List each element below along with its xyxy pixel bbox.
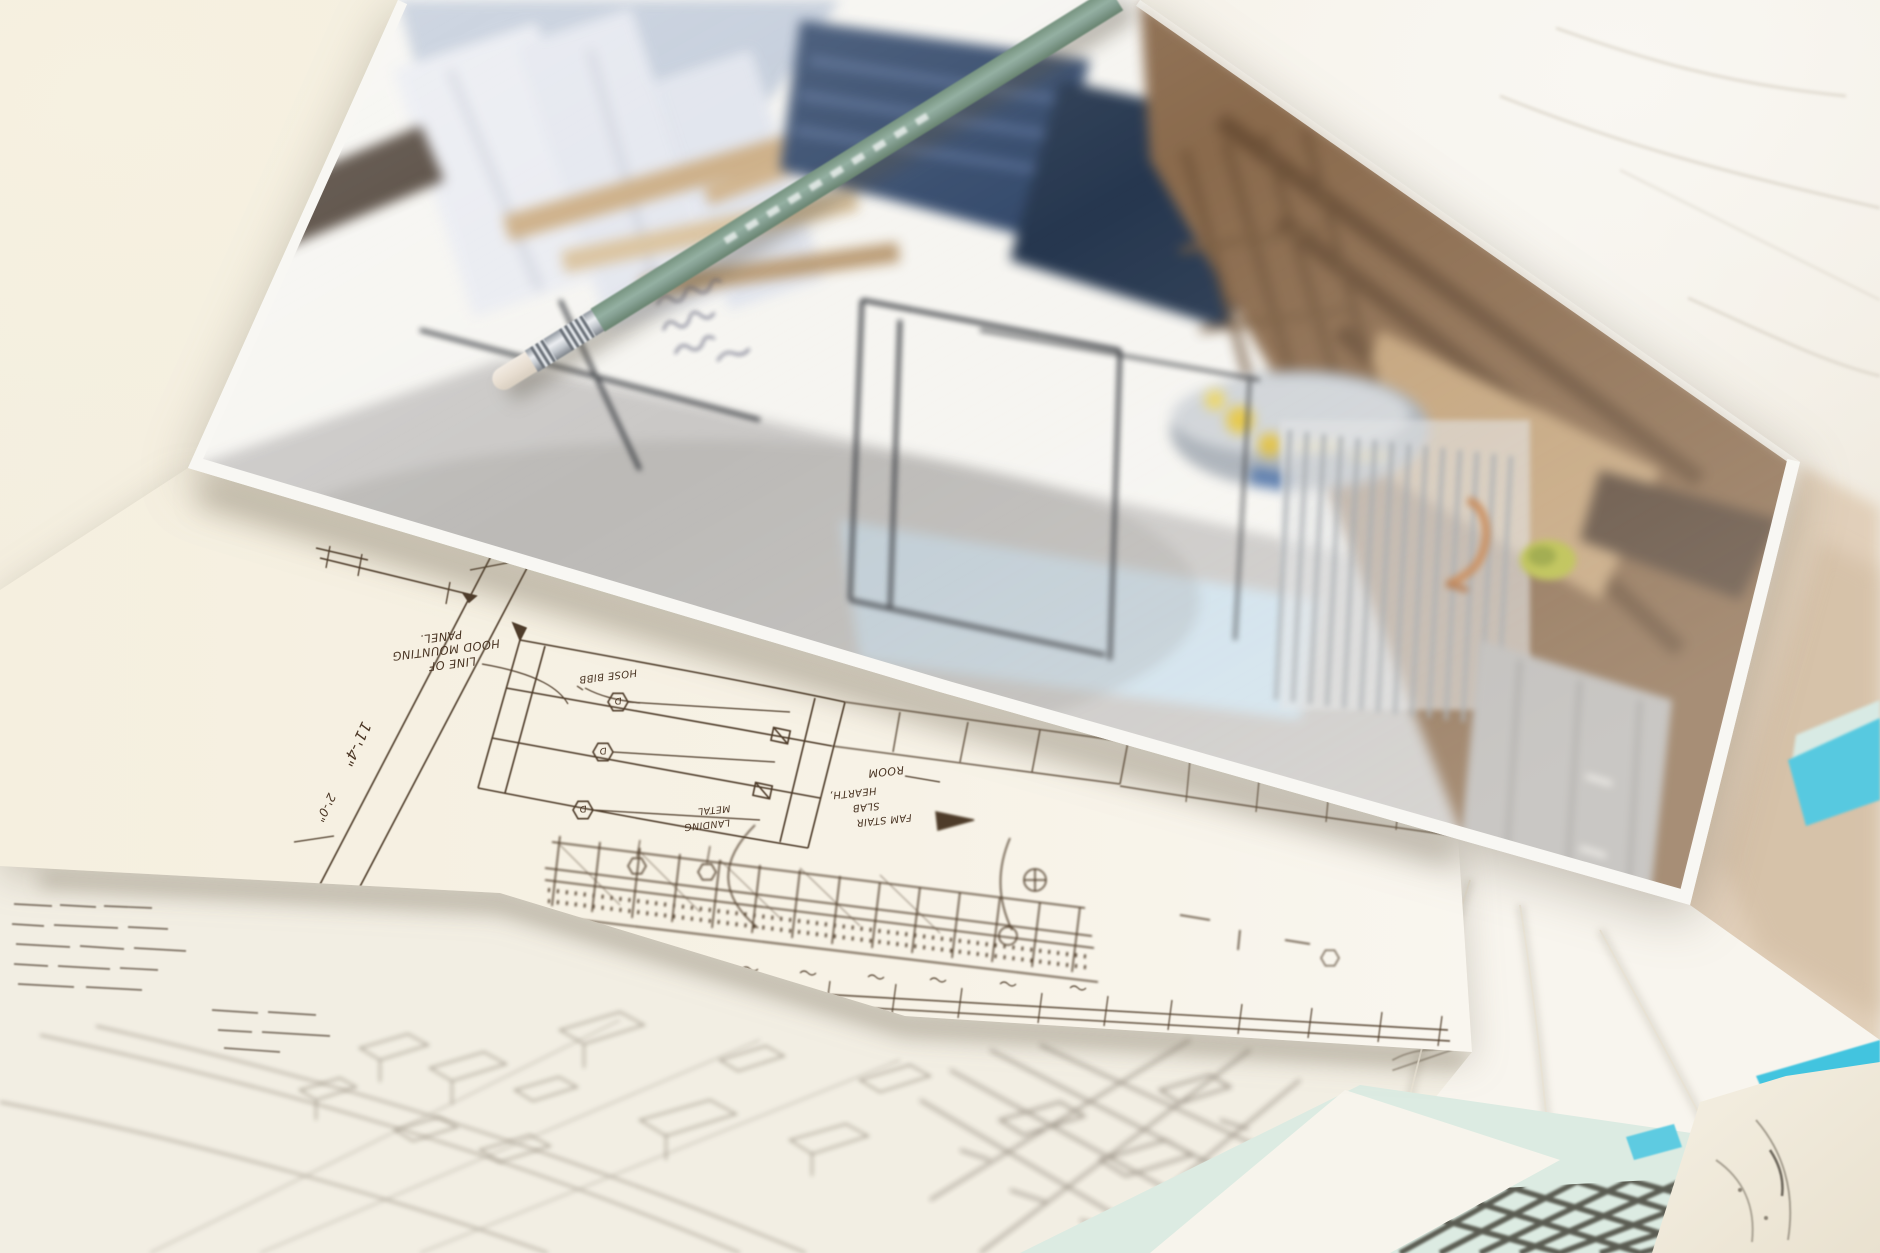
desk-scene: 11'-4" 2'-0" LINE OF HOOD MOUNTING PANEL…: [0, 0, 1880, 1253]
